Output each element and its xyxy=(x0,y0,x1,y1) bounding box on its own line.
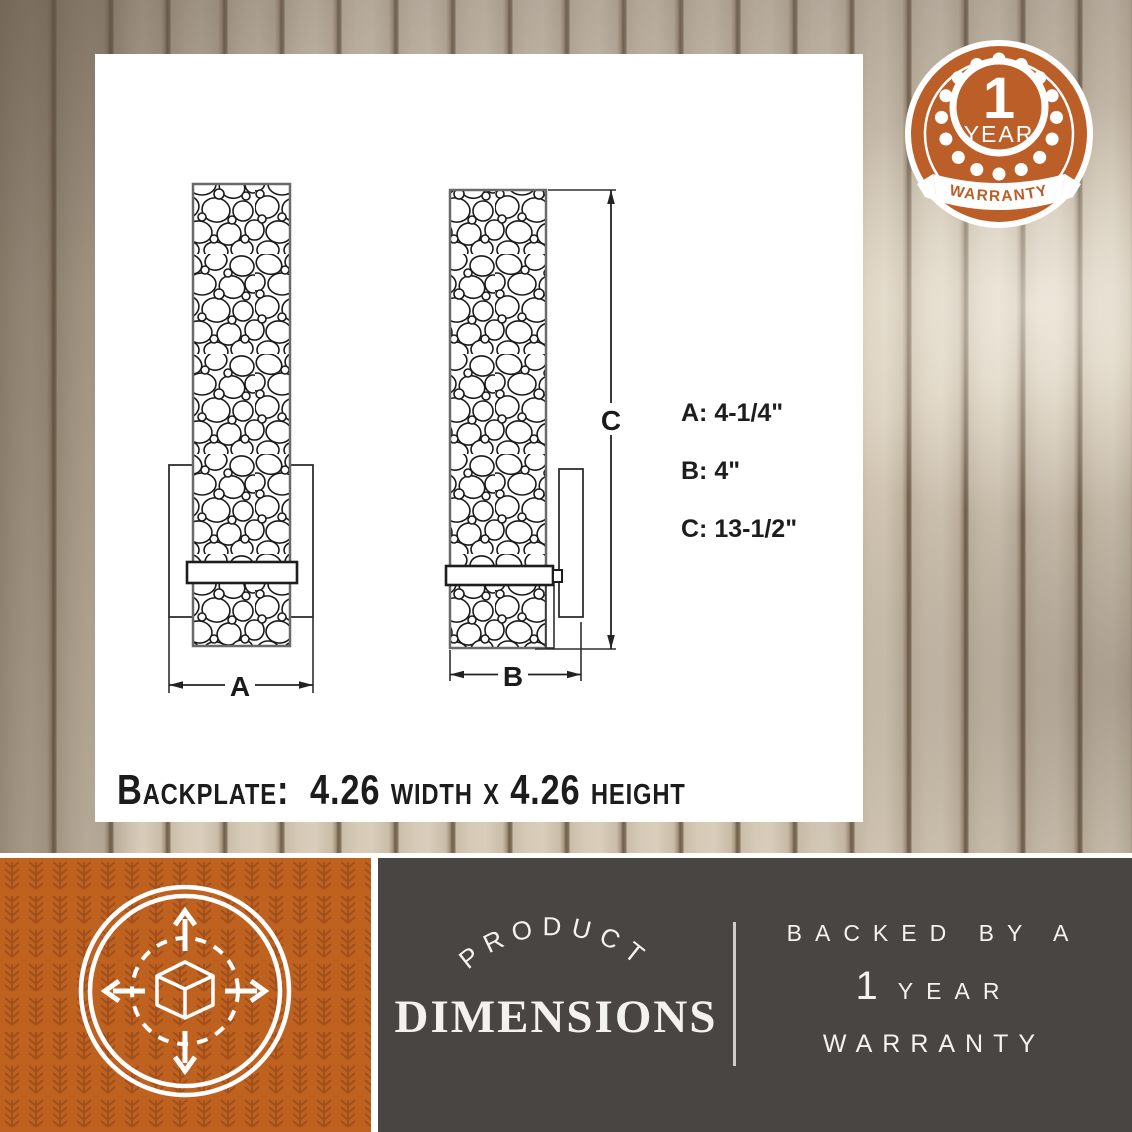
svg-text:PRODUCT: PRODUCT xyxy=(453,916,657,975)
dim-b-marker: B xyxy=(503,661,523,692)
one-year-line: 1 YEAR xyxy=(736,964,1132,1009)
side-view: B C xyxy=(446,190,628,692)
side-mount-band xyxy=(446,566,553,585)
dim-a-line: A xyxy=(169,667,313,702)
dim-c-line: C xyxy=(594,190,628,649)
callout-b: B: 4" xyxy=(681,442,797,500)
one-year-label: YEAR xyxy=(898,978,1013,1005)
callout-a: A: 4-1/4" xyxy=(681,384,797,442)
warranty-text-block: BACKED BY A 1 YEAR WARRANTY xyxy=(736,858,1132,1132)
callout-c: C: 13-1/2" xyxy=(681,500,797,558)
side-column-edge xyxy=(546,583,554,648)
footer-gray-band: PRODUCT DIMENSIONS BACKED BY A 1 YEAR WA… xyxy=(378,858,1132,1132)
front-view: A xyxy=(169,184,313,702)
dimensions-title: DIMENSIONS xyxy=(378,990,734,1044)
dim-b-line: B xyxy=(450,657,581,692)
dim-a-marker: A xyxy=(230,671,250,702)
badge-year-label: YEAR xyxy=(964,121,1035,147)
product-dimensions-icon xyxy=(0,858,371,1132)
front-mount-band xyxy=(187,562,297,583)
side-mount-tab xyxy=(553,570,562,582)
one-year-warranty-badge: 1 YEAR WARRANTY xyxy=(905,40,1093,228)
product-dimensions-image: A B xyxy=(0,0,1132,1132)
diagram-panel: A B xyxy=(95,54,863,822)
dim-c-marker: C xyxy=(601,405,621,436)
backed-by-line: BACKED BY A xyxy=(736,920,1132,947)
footer-orange-tile xyxy=(0,858,371,1132)
warranty-line: WARRANTY xyxy=(736,1030,1132,1059)
side-backplate-outline xyxy=(559,469,583,617)
backplate-note: Backplate: 4.26 width x 4.26 height xyxy=(117,766,686,814)
one-year-number: 1 xyxy=(856,964,878,1009)
dimension-callouts: A: 4-1/4" B: 4" C: 13-1/2" xyxy=(681,384,797,558)
product-label: PRODUCT xyxy=(453,916,657,975)
